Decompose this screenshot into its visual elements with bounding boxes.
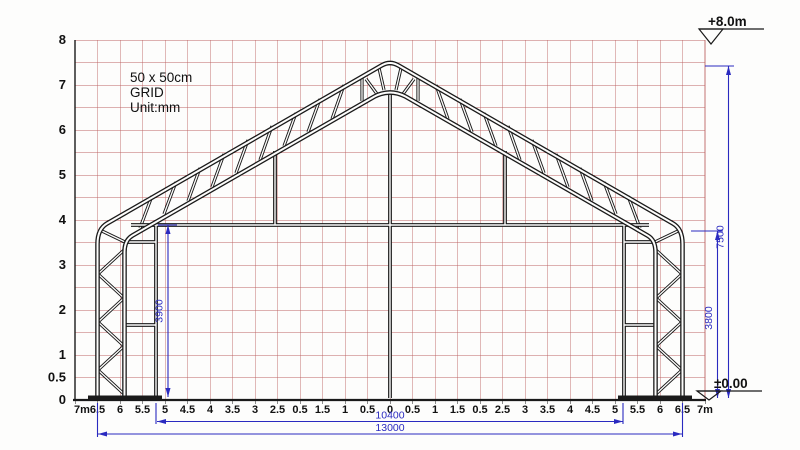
y-axis-label: 8 (59, 32, 66, 47)
x-axis-label: 1 (432, 404, 438, 416)
x-axis-label: 6 (117, 404, 123, 416)
y-axis-label: 0 (59, 392, 66, 407)
x-axis-label: 0.5 (292, 404, 307, 416)
y-axis-label: 5 (59, 167, 66, 182)
x-axis-label: 7m (74, 404, 90, 416)
base-plate-right (618, 396, 692, 401)
x-axis-label: 4.5 (585, 404, 600, 416)
x-axis-label: 4 (207, 404, 214, 416)
drawing-page: 8 7 6 5 4 3 2 1 0.5 0 7m 6.5 6 5.5 5 4.5… (0, 0, 800, 450)
dim-text-overall-height: 7500 (715, 225, 727, 249)
x-axis-label: 5 (612, 404, 618, 416)
level-text-top: +8.0m (708, 14, 747, 29)
x-axis-label: 3.5 (540, 404, 555, 416)
y-axis-label: 1 (59, 347, 66, 362)
x-axis-label: 3.5 (225, 404, 240, 416)
x-axis-label: 5 (162, 404, 168, 416)
x-axis-label: 1.5 (315, 404, 330, 416)
x-axis-label: 4 (567, 404, 574, 416)
x-axis-label: 7m (697, 404, 713, 416)
x-axis-label: 3 (252, 404, 258, 416)
base-plate-left (88, 396, 162, 401)
x-axis-label: 4.5 (180, 404, 195, 416)
x-axis-label: 1 (342, 404, 348, 416)
level-text-bottom: ±0.00 (714, 376, 748, 391)
grid-note-line2: GRID (130, 85, 164, 100)
x-axis-label: 6 (657, 404, 663, 416)
x-axis-label: 2.5 (495, 404, 510, 416)
dim-text-eave-height: 3800 (703, 306, 715, 330)
x-axis-label: 0.5 (472, 404, 487, 416)
grid-note-line3: Unit:mm (130, 100, 180, 115)
dim-text-opening-width: 10400 (375, 410, 404, 422)
x-axis-label: 1.5 (450, 404, 465, 416)
dim-text-overall-width: 13000 (375, 422, 404, 434)
truss-elevation-drawing: 8 7 6 5 4 3 2 1 0.5 0 7m 6.5 6 5.5 5 4.5… (0, 0, 800, 450)
x-axis-label: 0.5 (405, 404, 420, 416)
x-axis-label: 2.5 (270, 404, 285, 416)
x-axis-label: 0.5 (360, 404, 375, 416)
y-axis-label: 4 (59, 212, 67, 227)
dim-text-door-height: 3900 (154, 299, 166, 323)
y-axis-label: 6 (59, 122, 66, 137)
grid-note-line1: 50 x 50cm (130, 70, 192, 85)
x-axis-label: 5.5 (630, 404, 645, 416)
y-axis-label: 7 (59, 77, 66, 92)
y-axis-label: 2 (59, 302, 66, 317)
y-axis-label: 0.5 (48, 370, 66, 385)
y-axis-label: 3 (59, 257, 66, 272)
x-axis-label: 5.5 (135, 404, 150, 416)
x-axis-label: 3 (522, 404, 528, 416)
